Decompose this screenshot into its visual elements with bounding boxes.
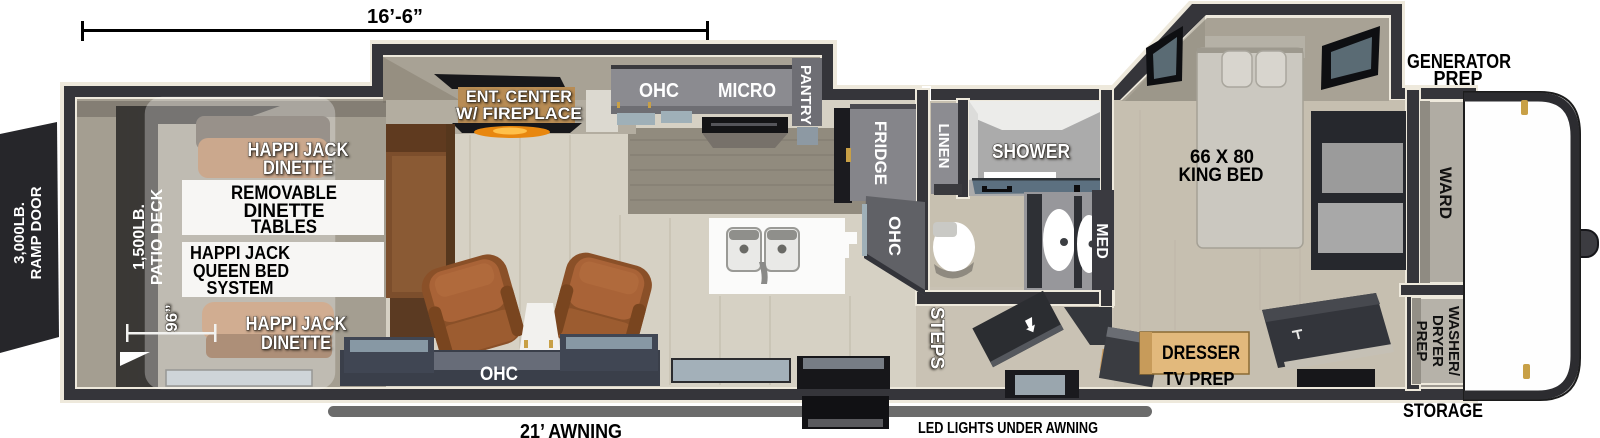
svg-text:16’-6”: 16’-6” bbox=[367, 6, 423, 28]
svg-text:HAPPI JACK: HAPPI JACK bbox=[246, 314, 347, 335]
svg-text:PREP: PREP bbox=[1434, 68, 1483, 90]
svg-text:OHC: OHC bbox=[885, 216, 904, 256]
svg-text:SYSTEM: SYSTEM bbox=[207, 278, 274, 298]
svg-text:TV PREP: TV PREP bbox=[1164, 369, 1235, 389]
svg-text:STEPS: STEPS bbox=[926, 307, 947, 369]
svg-text:3,000LB.: 3,000LB. bbox=[11, 202, 28, 264]
svg-text:MED: MED bbox=[1093, 223, 1110, 259]
svg-text:PANTRY: PANTRY bbox=[797, 65, 814, 125]
svg-text:OHC: OHC bbox=[480, 364, 518, 385]
svg-text:HAPPI JACK: HAPPI JACK bbox=[190, 243, 290, 263]
svg-text:RAMP DOOR: RAMP DOOR bbox=[28, 186, 45, 279]
svg-text:SHOWER: SHOWER bbox=[992, 141, 1070, 163]
svg-text:LED LIGHTS UNDER AWNING: LED LIGHTS UNDER AWNING bbox=[918, 420, 1098, 437]
svg-text:DRYER: DRYER bbox=[1429, 315, 1446, 367]
svg-text:FRIDGE: FRIDGE bbox=[871, 121, 890, 185]
svg-text:W/ FIREPLACE: W/ FIREPLACE bbox=[456, 104, 582, 123]
svg-text:WARD: WARD bbox=[1436, 167, 1455, 219]
svg-text:DINETTE: DINETTE bbox=[263, 158, 333, 179]
svg-text:1,500LB.: 1,500LB. bbox=[131, 204, 148, 270]
svg-text:PATIO DECK: PATIO DECK bbox=[149, 188, 166, 285]
svg-text:21’ AWNING: 21’ AWNING bbox=[520, 421, 622, 438]
svg-text:DRESSER: DRESSER bbox=[1162, 343, 1240, 364]
svg-text:DINETTE: DINETTE bbox=[261, 333, 331, 354]
svg-text:96”: 96” bbox=[162, 304, 181, 331]
svg-text:OHC: OHC bbox=[639, 80, 679, 102]
svg-text:PREP: PREP bbox=[1413, 321, 1430, 362]
svg-text:MICRO: MICRO bbox=[718, 80, 776, 102]
svg-text:LINEN: LINEN bbox=[935, 124, 952, 169]
svg-text:TABLES: TABLES bbox=[251, 217, 317, 238]
svg-text:WASHER/: WASHER/ bbox=[1445, 306, 1462, 377]
svg-text:STORAGE: STORAGE bbox=[1403, 401, 1483, 422]
svg-text:KING BED: KING BED bbox=[1179, 165, 1264, 186]
